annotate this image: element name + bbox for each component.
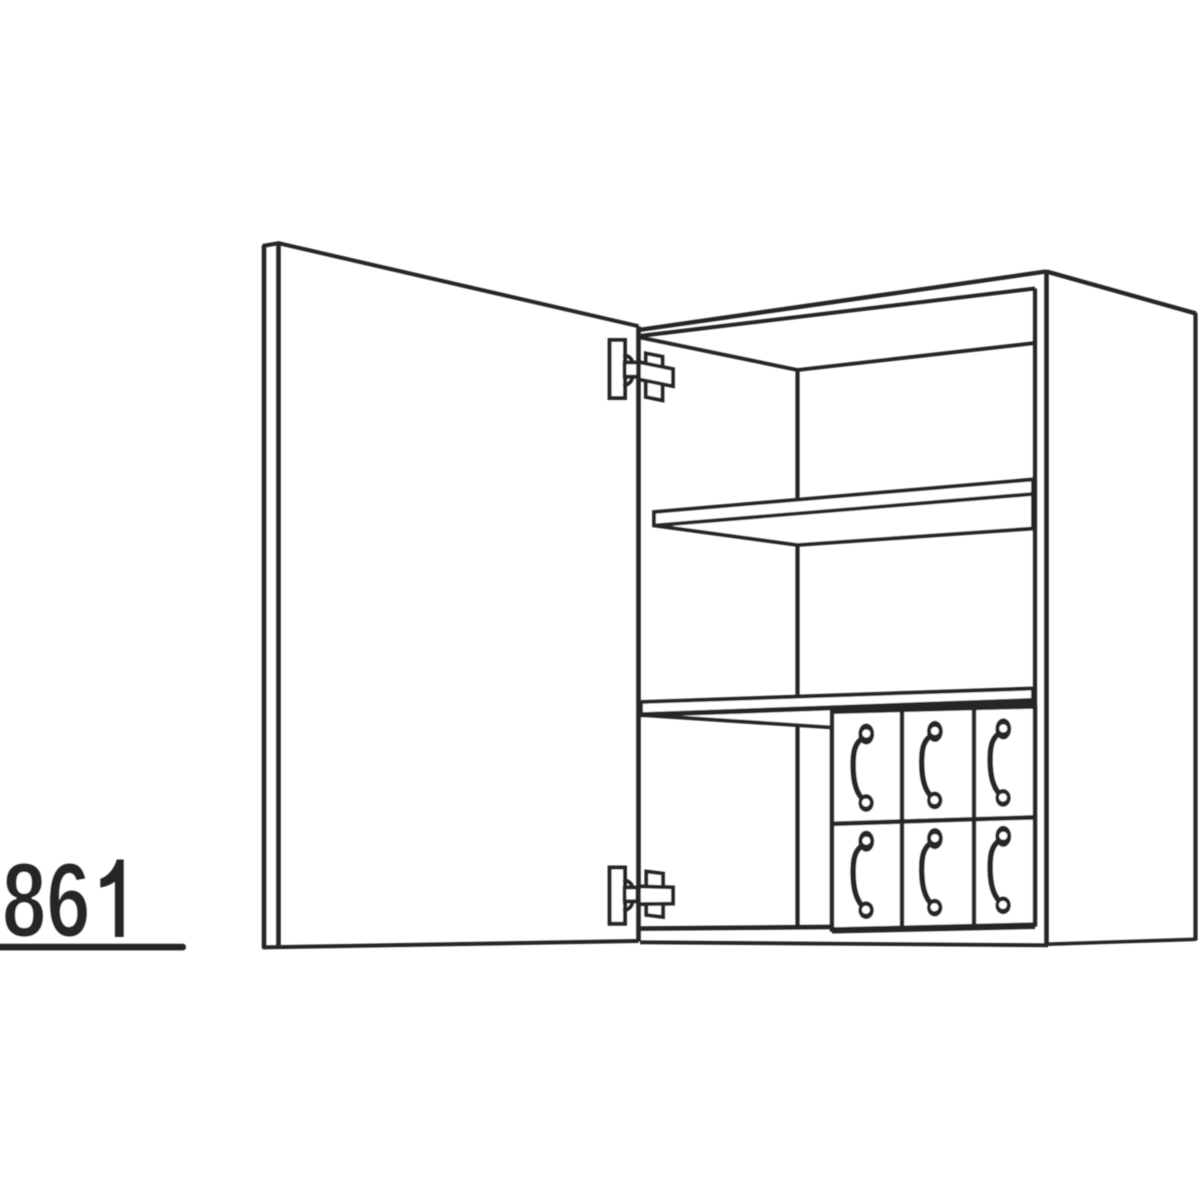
svg-text:86: 86: [2, 840, 90, 959]
